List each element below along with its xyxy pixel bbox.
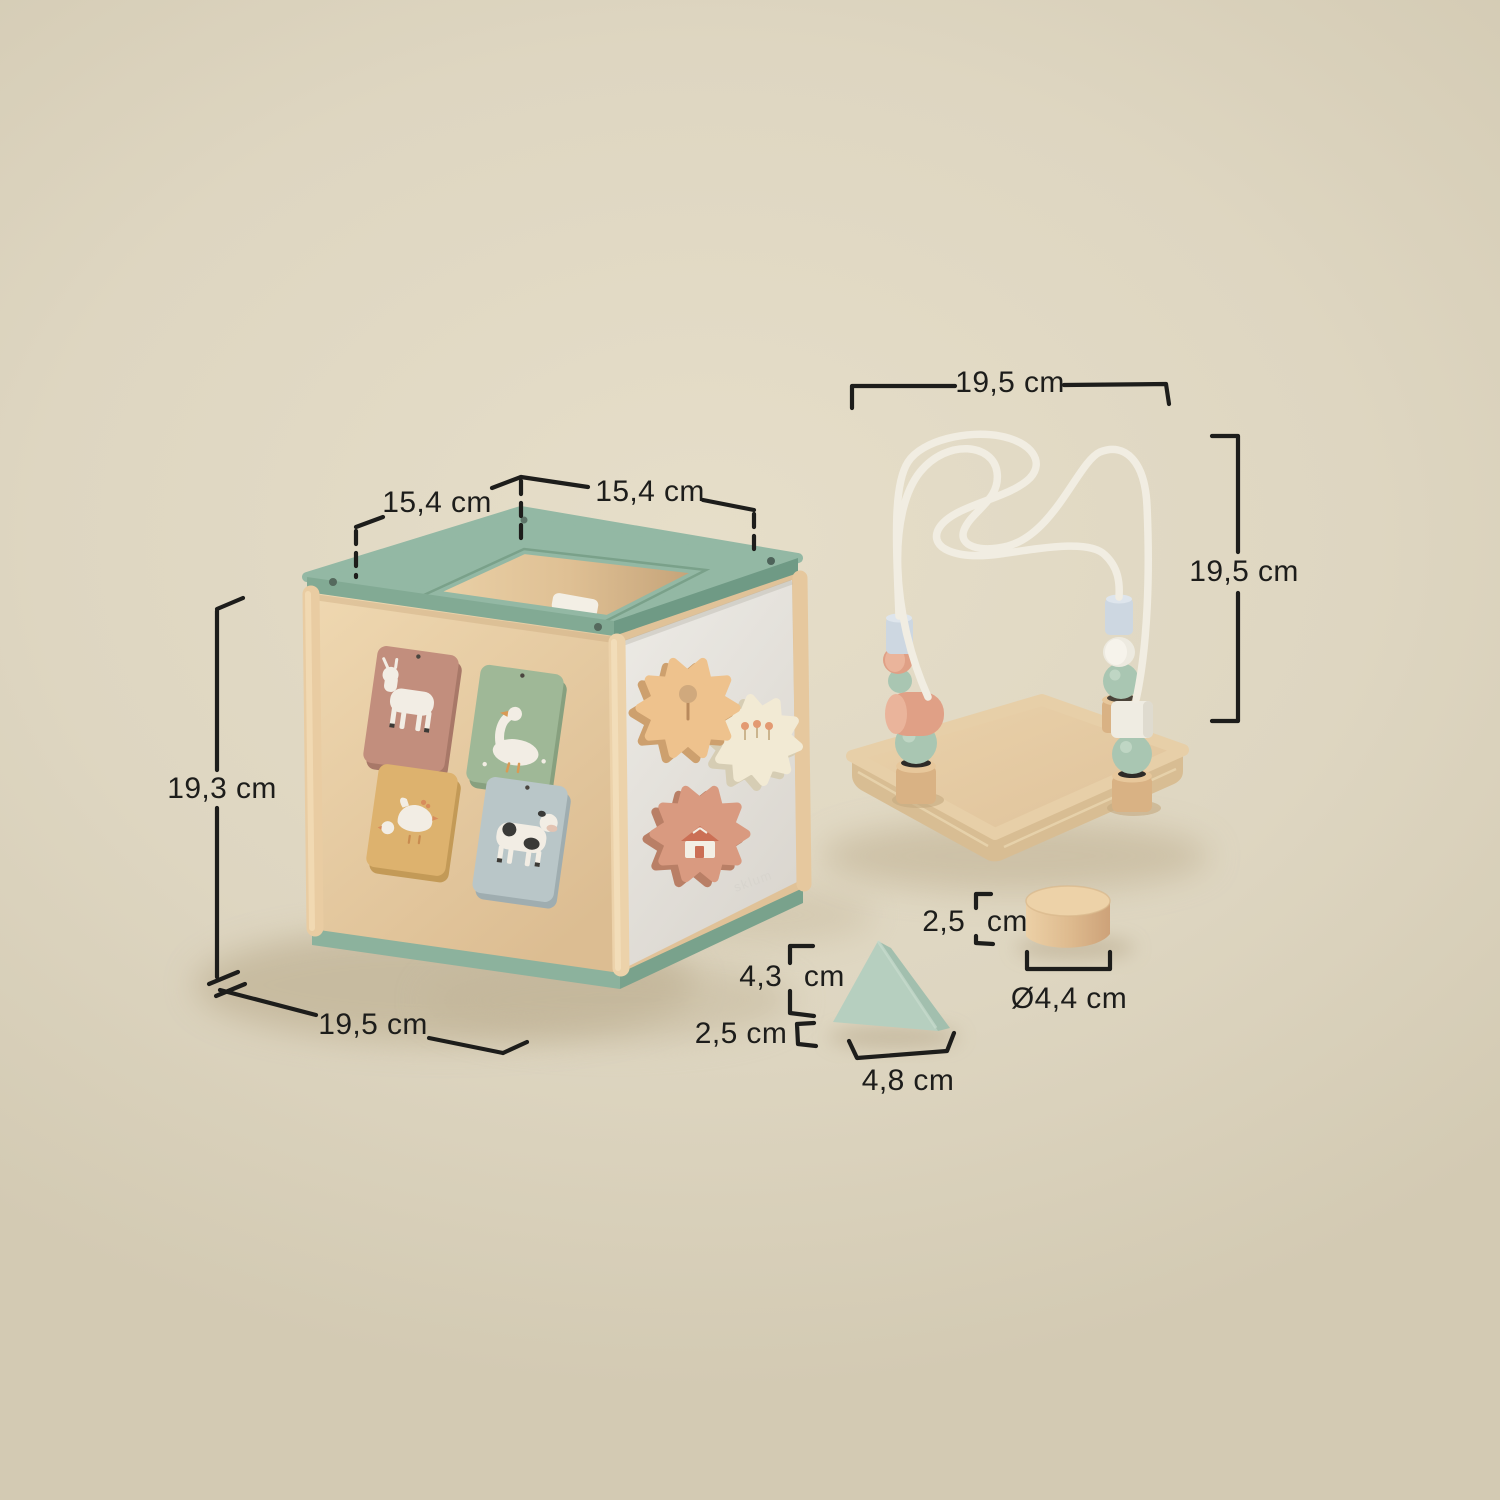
dim-triangle-depth-lines bbox=[797, 1023, 816, 1046]
triangle-block bbox=[833, 941, 950, 1031]
dimension-label-maze-height: 19,5 cm bbox=[1189, 557, 1299, 587]
activity-cube bbox=[307, 511, 804, 989]
dimension-label-triangle-width: 4,8 cm bbox=[862, 1066, 954, 1096]
dimension-label-cube-top-right: 15,4 cm bbox=[595, 477, 705, 507]
dimension-label-triangle-height: 4,3 cm bbox=[739, 962, 844, 992]
dimension-label-cylinder-height: 2,5 cm bbox=[922, 907, 1027, 937]
dimension-label-cube-top-left: 15,4 cm bbox=[382, 488, 492, 518]
dimension-label-cylinder-diameter: Ø4,4 cm bbox=[1011, 984, 1127, 1014]
product-illustration bbox=[0, 0, 1500, 1500]
dimension-label-maze-width: 19,5 cm bbox=[955, 368, 1065, 398]
dimension-label-cube-height: 19,3 cm bbox=[167, 774, 277, 804]
bead-maze bbox=[852, 434, 1183, 861]
product-dimension-diagram: 15,4 cm 15,4 cm 19,3 cm 19,5 cm 19,5 cm … bbox=[0, 0, 1500, 1500]
dimension-label-triangle-depth: 2,5 cm bbox=[695, 1019, 787, 1049]
dimension-label-cube-depth: 19,5 cm bbox=[318, 1010, 428, 1040]
cylinder-block bbox=[1026, 886, 1110, 948]
